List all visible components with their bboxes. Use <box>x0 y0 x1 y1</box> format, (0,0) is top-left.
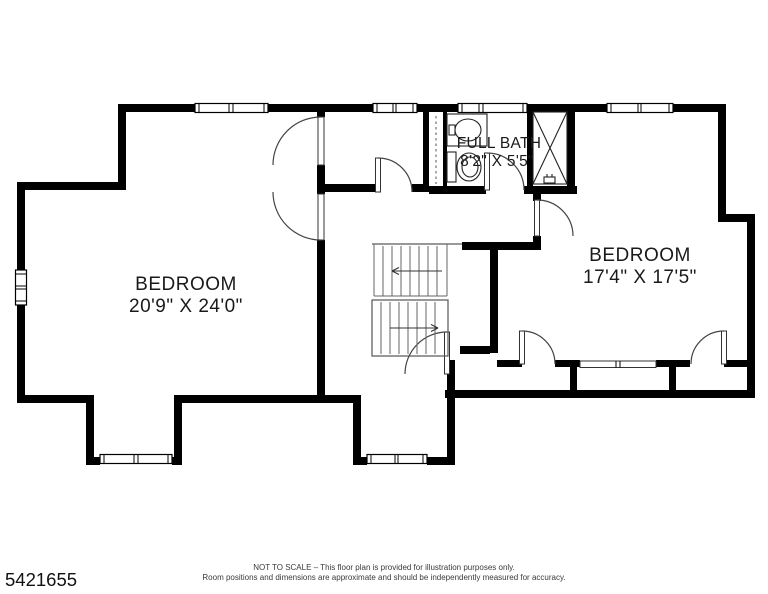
disclaimer-line1: NOT TO SCALE – This floor plan is provid… <box>253 563 515 572</box>
full-bath-dimensions: 8'2" X 5'5" <box>460 153 534 170</box>
floor-plan-svg: BEDROOM 20'9" X 24'0" FULL BATH 8'2" X 5… <box>0 0 768 594</box>
stair-arrow-down <box>390 325 438 332</box>
window-closet-room <box>373 104 417 113</box>
door-right-bedroom-entry <box>535 200 574 236</box>
room-labels: BEDROOM 20'9" X 24'0" FULL BATH 8'2" X 5… <box>129 135 697 317</box>
door-closet-room <box>376 158 413 192</box>
door-right-closet-left <box>520 331 556 364</box>
window-right-bedroom <box>607 104 673 113</box>
door-left-bedroom-lower <box>273 192 324 240</box>
disclaimer-line2: Room positions and dimensions are approx… <box>202 573 565 582</box>
closet-sliding-front <box>580 361 656 368</box>
floor-plan-page: BEDROOM 20'9" X 24'0" FULL BATH 8'2" X 5… <box>0 0 768 594</box>
bedroom-right-dimensions: 17'4" X 17'5" <box>583 267 697 288</box>
full-bath-label: FULL BATH <box>457 135 542 152</box>
stair-arrow-up <box>392 268 442 275</box>
window-top-left-bedroom <box>195 104 268 113</box>
door-left-bedroom-upper <box>273 117 324 165</box>
door-right-closet-right <box>691 331 727 364</box>
bedroom-left-dimensions: 20'9" X 24'0" <box>129 296 243 317</box>
door-stair-hall <box>405 332 450 374</box>
bedroom-right-label: BEDROOM <box>589 245 691 266</box>
listing-number: 5421655 <box>5 569 77 590</box>
bedroom-left-label: BEDROOM <box>135 274 237 295</box>
window-bath <box>458 104 527 113</box>
window-left-bay <box>100 455 172 464</box>
window-left-wall <box>16 270 27 305</box>
footer: 5421655 NOT TO SCALE – This floor plan i… <box>5 563 566 590</box>
stairs <box>372 244 462 356</box>
window-center-bay <box>367 455 427 464</box>
